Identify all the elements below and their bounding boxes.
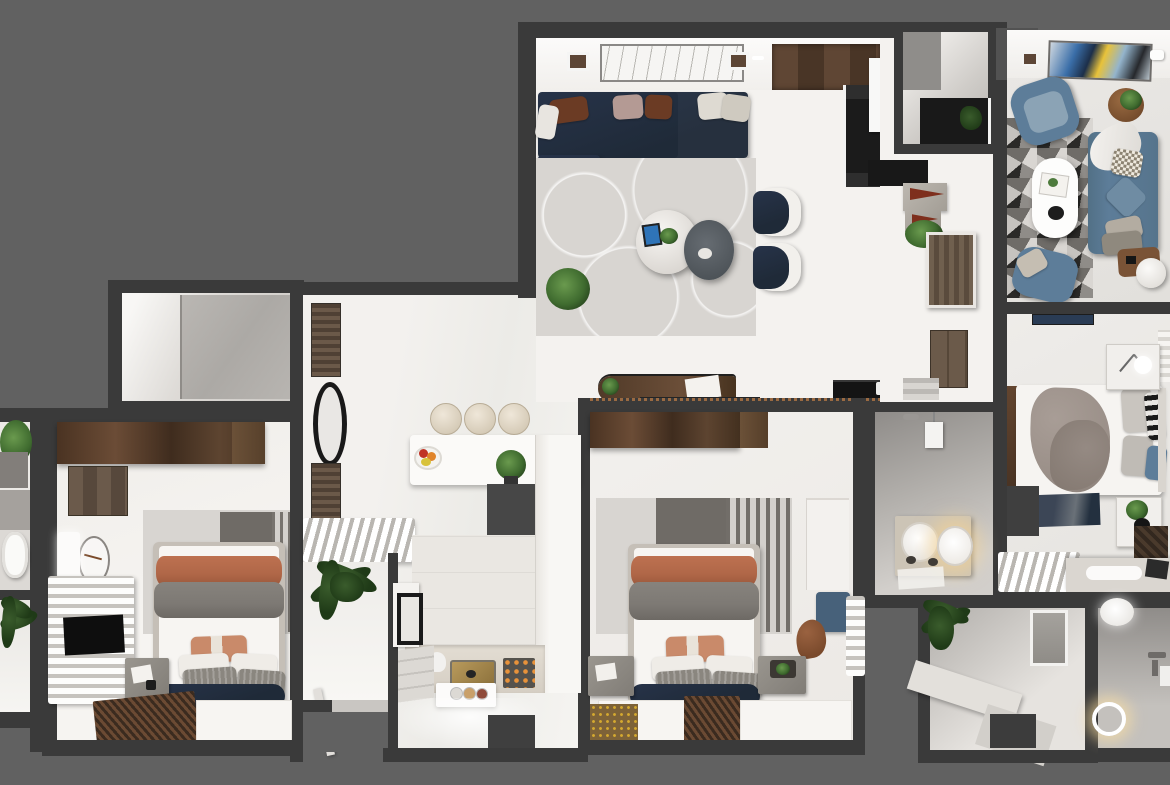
accent-chair-1-cushion bbox=[753, 191, 789, 234]
shower-room-bottom-wall bbox=[1098, 748, 1170, 762]
shower-head bbox=[903, 414, 919, 420]
sofa-pillow-white-2 bbox=[720, 93, 751, 123]
lounge-ceiling-spot-2 bbox=[1150, 50, 1164, 60]
bar-stool-2 bbox=[464, 403, 496, 435]
left-bedroom-wall-cabinet bbox=[68, 466, 128, 516]
center-bedroom-bottom-wall bbox=[578, 740, 865, 755]
center-shelf-unit bbox=[806, 498, 849, 590]
hall-top-wall bbox=[290, 282, 536, 295]
lounge-wall-art bbox=[1047, 40, 1152, 82]
right-bedroom-wall-notch bbox=[1007, 486, 1039, 536]
desk-keyboard bbox=[1086, 566, 1142, 580]
ceiling-spots bbox=[752, 56, 764, 60]
right-bed-headboard-edge bbox=[1158, 388, 1166, 492]
living-wall-art bbox=[600, 44, 744, 82]
white-pouf bbox=[1136, 258, 1166, 288]
sofa-pillow-mauve bbox=[612, 94, 644, 120]
toilet bbox=[2, 532, 28, 578]
entry-closet-block bbox=[903, 32, 941, 90]
coffee-table-plant bbox=[660, 228, 678, 244]
bar-stool-3 bbox=[498, 403, 530, 435]
left-nightstand-item bbox=[146, 680, 156, 690]
left-bedroom-floor-mat bbox=[196, 700, 292, 742]
kitchen-steps bbox=[398, 645, 434, 702]
laundry-left-wall bbox=[865, 410, 875, 598]
center-bedroom-runner-rug bbox=[684, 696, 740, 744]
center-wardrobe-end bbox=[740, 412, 768, 448]
kitchen-dark-notch bbox=[488, 715, 535, 748]
sink-drain bbox=[466, 670, 476, 678]
entry-closet-plant bbox=[960, 106, 982, 130]
vestibule-outside-gap bbox=[303, 712, 388, 752]
gold-dotted-mat bbox=[590, 704, 638, 740]
shower-fixture-pipe bbox=[1152, 660, 1158, 676]
stone-slab-floor bbox=[180, 295, 292, 399]
lounge-bottom-wall bbox=[1000, 302, 1170, 314]
room-a-plant-center bbox=[928, 606, 954, 650]
room-a-right-wall bbox=[1085, 598, 1098, 762]
oval-coffee-table bbox=[1032, 158, 1078, 238]
wooden-slat-door bbox=[926, 232, 976, 308]
kitchen-bottom-wall bbox=[383, 748, 588, 762]
living-plant bbox=[546, 268, 590, 310]
floor-drain-light-ring bbox=[1092, 702, 1126, 736]
accent-chair-2-cushion bbox=[753, 246, 789, 289]
living-top-wall bbox=[518, 22, 894, 38]
lounge-side-table-plant bbox=[1120, 90, 1142, 110]
hall-wall-panel-1 bbox=[311, 303, 341, 377]
right-nightstand-plant bbox=[1126, 500, 1148, 520]
apartment-floorplan-render bbox=[0, 0, 1170, 785]
wall-water-heater bbox=[925, 422, 943, 448]
basin-right bbox=[937, 526, 973, 566]
console-desk-plant bbox=[602, 378, 619, 395]
right-bedroom-wall-art bbox=[1032, 314, 1094, 325]
sphere-table-lamp bbox=[1134, 356, 1152, 374]
vestibule-threshold bbox=[332, 700, 388, 712]
right-bedroom-rug bbox=[1035, 493, 1100, 527]
kitchen-dark-column bbox=[487, 484, 537, 536]
open-white-door bbox=[869, 58, 880, 132]
kitchen-floor-tiles bbox=[412, 535, 535, 645]
checkered-pillow bbox=[1110, 148, 1144, 179]
lounge-ceiling-spot-1 bbox=[1022, 52, 1038, 66]
room-a-dark-block bbox=[990, 714, 1036, 748]
living-left-wall bbox=[518, 22, 536, 298]
left-strip-desk-1 bbox=[0, 452, 28, 488]
shower-shelf-box bbox=[1160, 666, 1170, 686]
oval-table-plant-dot bbox=[1048, 178, 1058, 187]
shower-fixture-bar bbox=[1148, 652, 1166, 658]
black-frame-inset bbox=[397, 593, 423, 645]
lounge-camera-item bbox=[1126, 256, 1136, 264]
right-nightstand-top bbox=[1106, 344, 1160, 390]
hall-slatted-bench bbox=[303, 518, 415, 562]
center-bedroom-mat-right bbox=[740, 700, 852, 742]
center-bedroom-right-wall bbox=[853, 398, 865, 755]
center-bedroom-wardrobe bbox=[590, 412, 740, 448]
center-slatted-dresser bbox=[846, 596, 865, 676]
vanity-knob-2 bbox=[928, 558, 938, 566]
room-a-wall-panel bbox=[1030, 610, 1068, 666]
left-strip-desk-2 bbox=[0, 490, 30, 530]
ceiling-speaker-1 bbox=[567, 52, 589, 71]
vestibule-plant-center bbox=[330, 572, 364, 602]
vanity-knob-1 bbox=[906, 556, 916, 564]
left-bedroom-bottom-wall bbox=[42, 740, 303, 756]
ceiling-speaker-2 bbox=[728, 52, 749, 70]
center-nightstand-left-book bbox=[595, 663, 617, 682]
bar-stool-1 bbox=[430, 403, 462, 435]
sofa-pillow-brown-2 bbox=[644, 94, 672, 119]
center-bed-gray-blanket bbox=[629, 582, 759, 620]
desk-laptop bbox=[1145, 559, 1169, 580]
sphere-pendant-light bbox=[1100, 598, 1134, 626]
basin-left bbox=[901, 522, 939, 562]
oval-mirror bbox=[313, 382, 347, 466]
entry-lounge-wall bbox=[993, 22, 1007, 606]
left-bedroom-tv bbox=[63, 614, 125, 655]
gray-steps bbox=[903, 378, 939, 400]
left-bedroom-wardrobe-end bbox=[232, 422, 265, 464]
oval-table-bowl bbox=[1048, 206, 1064, 220]
left-strip-bottom-wall bbox=[0, 712, 30, 728]
left-bed-gray-blanket bbox=[154, 582, 284, 618]
coffee-table-dark-plate bbox=[698, 248, 712, 259]
room-a-bottom-wall bbox=[918, 750, 1098, 763]
fruit-yellow bbox=[421, 458, 431, 466]
entry-wood-floor bbox=[772, 44, 880, 90]
laundry-floor-mat bbox=[897, 566, 944, 589]
center-nightstand-plant bbox=[776, 663, 790, 675]
cooktop bbox=[503, 658, 535, 688]
kitchen-plant-pot bbox=[504, 476, 518, 484]
hall-left-wall bbox=[290, 280, 303, 762]
